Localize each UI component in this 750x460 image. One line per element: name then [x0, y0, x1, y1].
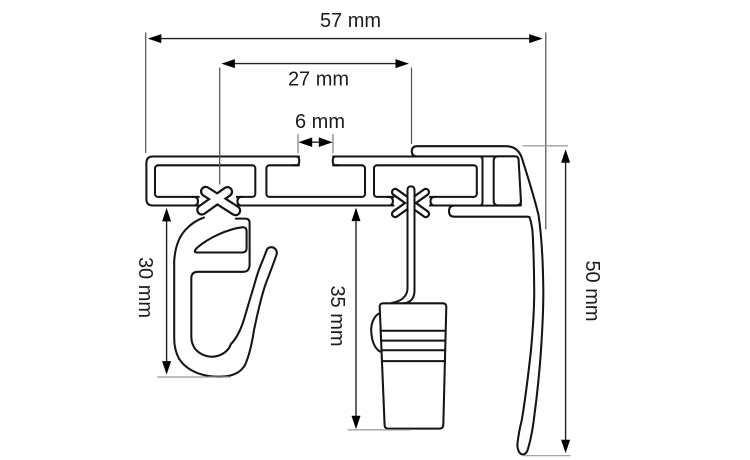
svg-text:6 mm: 6 mm [295, 111, 345, 133]
svg-text:35 mm: 35 mm [326, 285, 348, 346]
svg-text:57 mm: 57 mm [320, 10, 381, 32]
svg-text:27 mm: 27 mm [288, 68, 349, 90]
svg-text:30 mm: 30 mm [134, 257, 156, 318]
svg-text:50 mm: 50 mm [581, 260, 603, 321]
